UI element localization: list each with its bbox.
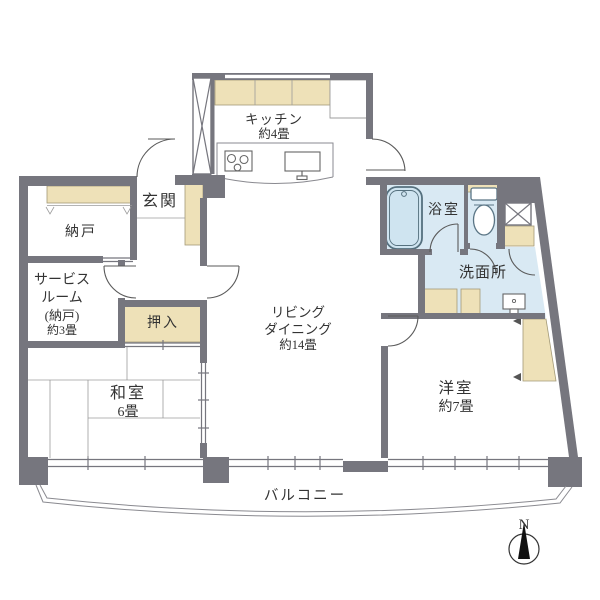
washitsu-ld-sliding-door (198, 363, 209, 443)
kitchen-fridge-space (330, 80, 367, 118)
counter-front-edge (217, 177, 333, 184)
washroom-cabinet-right (461, 289, 480, 317)
kitchen-counter (217, 143, 333, 184)
entrance-door-arc (137, 139, 175, 177)
washroom-cabinet-left (420, 289, 457, 317)
western-room-door-arc (388, 316, 418, 346)
corridor-corner-wall (203, 175, 225, 198)
pillar-left (19, 457, 48, 485)
left-outer-wall (19, 176, 28, 458)
kitchen-window (225, 75, 330, 78)
washitsu-balcony-window (48, 456, 203, 470)
western-room-label: 洋室 (438, 379, 473, 397)
storage-label: 納戸 (65, 224, 97, 240)
pillar-middle (203, 457, 229, 483)
washroom-label: 洗面所 (459, 264, 507, 281)
western-room-closet (523, 319, 556, 381)
service-room-label-3: (納戸) (45, 308, 80, 323)
tatami-grid (28, 347, 200, 458)
service-room-label-4: 約3畳 (47, 322, 77, 337)
wet-block-top-wall (366, 177, 537, 185)
living-dining-label-1: リビング (271, 305, 325, 320)
kitchen-label: キッチン (245, 112, 303, 127)
compass-north-label: N (519, 517, 530, 533)
ld-western-wall (381, 346, 388, 458)
corridor-right-wall (200, 198, 207, 266)
kitchen-right-wall (366, 73, 373, 139)
washroom-upper-cabinet (504, 226, 534, 246)
storage-sliding-door (102, 258, 133, 262)
kitchen-size-label: 約4畳 (258, 126, 289, 141)
japanese-room-size-label: 6畳 (118, 405, 139, 420)
storage-shelf (47, 186, 132, 203)
closet-door-mark-bottom (513, 373, 521, 381)
service-room-label-1: サービス (34, 272, 90, 288)
living-dining-label-2: ダイニング (264, 322, 332, 337)
western-room-balcony-window (388, 456, 548, 470)
toilet-icon (471, 188, 497, 235)
living-dining-label-3: 約14畳 (279, 337, 317, 352)
kitchen-door-arc (366, 139, 405, 171)
bathroom-left-wall (380, 185, 387, 255)
shaft-x-icon-kitchen (193, 78, 211, 174)
balcony-label: バルコニー (264, 488, 346, 504)
bathroom-label: 浴室 (428, 201, 460, 218)
service-room-label-2: ルーム (41, 291, 83, 306)
pillar-right (548, 457, 582, 487)
kitchen-cabinet (215, 80, 330, 105)
sink-icon (285, 152, 320, 171)
living-door-arc (207, 266, 239, 298)
floorplan-page: キッチン 約4畳 玄関 納戸 サービス ルーム (納戸) 約3畳 押入 リビング… (0, 0, 600, 600)
service-room-door-arc (104, 266, 136, 298)
storage-top-wall (19, 176, 137, 186)
hanger-mark-right (123, 207, 131, 214)
floorplan-svg: キッチン 約4畳 玄関 納戸 サービス ルーム (納戸) 約3畳 押入 リビング… (0, 0, 600, 600)
oshiire-label: 押入 (147, 315, 179, 331)
western-room-size-label: 約7畳 (439, 399, 474, 415)
entrance-label: 玄関 (142, 192, 178, 210)
hanger-mark-left (46, 207, 54, 214)
shaft-x-icon-toilet (505, 203, 531, 225)
washroom-left-wall (418, 249, 425, 317)
japanese-room-label: 和室 (110, 384, 146, 402)
ld-balcony-window (229, 456, 343, 470)
